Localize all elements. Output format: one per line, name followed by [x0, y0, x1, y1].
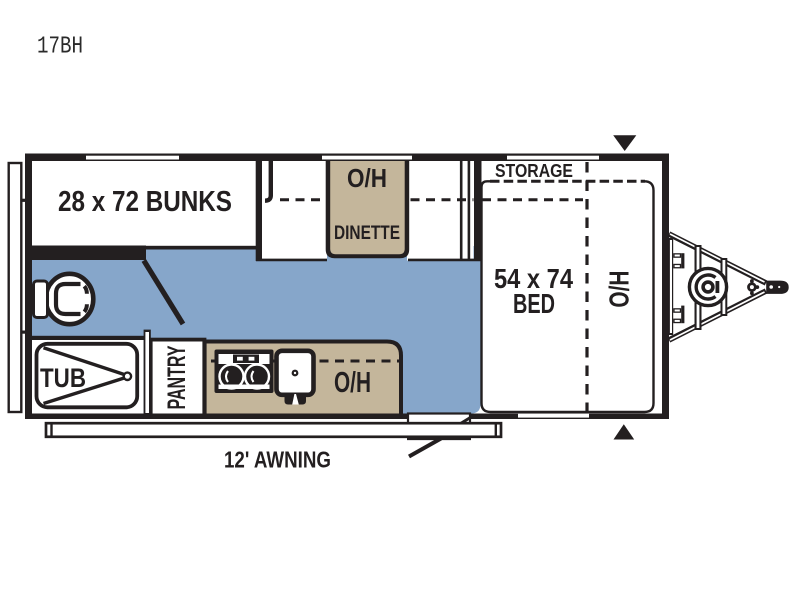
- svg-text:28 x 72 BUNKS: 28 x 72 BUNKS: [58, 186, 232, 218]
- svg-text:17BH: 17BH: [37, 34, 83, 61]
- svg-text:O/H: O/H: [334, 367, 371, 399]
- svg-text:TUB: TUB: [40, 363, 86, 393]
- svg-text:12' AWNING: 12' AWNING: [224, 447, 331, 473]
- svg-text:PANTRY: PANTRY: [163, 345, 191, 409]
- svg-text:DINETTE: DINETTE: [334, 223, 400, 244]
- svg-text:O/H: O/H: [604, 271, 635, 308]
- svg-text:O/H: O/H: [347, 163, 387, 193]
- svg-text:STORAGE: STORAGE: [495, 161, 573, 181]
- svg-text:BED: BED: [513, 288, 555, 319]
